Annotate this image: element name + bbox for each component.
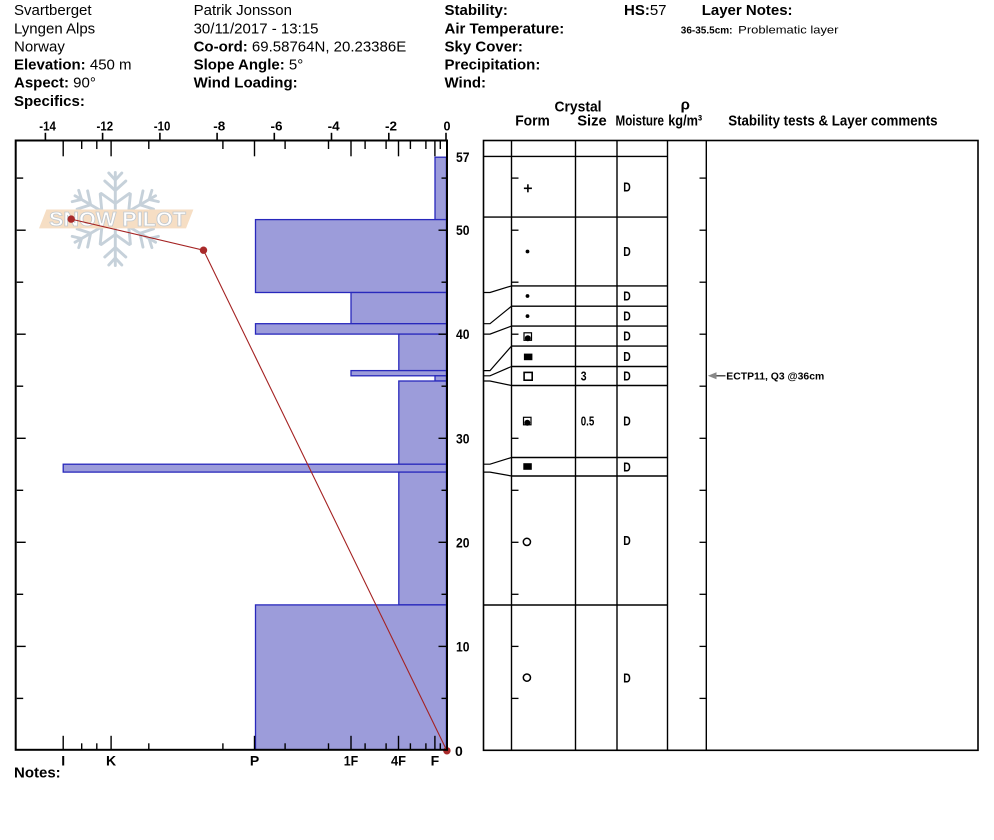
svg-text:0: 0	[455, 743, 463, 759]
svg-text:I: I	[61, 752, 65, 768]
svg-text:0: 0	[444, 119, 451, 134]
svg-text:30: 30	[456, 430, 470, 446]
svg-text:-10: -10	[154, 119, 171, 134]
svg-text:D: D	[623, 370, 631, 384]
svg-text:D: D	[623, 290, 631, 304]
svg-text:ρ: ρ	[681, 97, 690, 114]
svg-text:kg/m³: kg/m³	[668, 113, 702, 130]
svg-text:Precipitation:: Precipitation:	[445, 57, 541, 74]
svg-text:40: 40	[456, 326, 470, 342]
svg-text:Size: Size	[577, 113, 607, 130]
svg-text:Problematic layer: Problematic layer	[738, 24, 839, 36]
svg-text:-14: -14	[39, 119, 56, 134]
svg-text:Stability:: Stability:	[445, 2, 508, 19]
svg-text:10: 10	[456, 638, 470, 654]
svg-text:F: F	[431, 752, 440, 768]
svg-text:Air Temperature:: Air Temperature:	[445, 20, 565, 37]
svg-text:D: D	[623, 310, 631, 324]
svg-text:57: 57	[456, 149, 470, 165]
svg-text:4F: 4F	[391, 752, 406, 768]
svg-text:Stability tests & Layer commen: Stability tests & Layer comments	[728, 113, 937, 130]
svg-text:1F: 1F	[344, 752, 359, 768]
svg-text:20: 20	[456, 534, 470, 550]
svg-text:D: D	[623, 460, 631, 474]
svg-text:D: D	[623, 350, 631, 364]
svg-text:Patrik Jonsson: Patrik Jonsson	[194, 2, 292, 19]
svg-text:Wind Loading:: Wind Loading:	[194, 75, 298, 92]
svg-text:Norway: Norway	[14, 38, 65, 55]
svg-text:Co-ord: 69.58764N, 20.23386E: Co-ord: 69.58764N, 20.23386E	[194, 38, 407, 55]
svg-text:Elevation: 450 m: Elevation: 450 m	[14, 57, 132, 74]
svg-text:-12: -12	[97, 119, 114, 134]
svg-text:HS:57: HS:57	[624, 2, 667, 19]
svg-text:30/11/2017 - 13:15: 30/11/2017 - 13:15	[194, 20, 319, 37]
svg-text:D: D	[623, 330, 631, 344]
svg-text:D: D	[623, 245, 631, 259]
svg-text:Specifics:: Specifics:	[14, 93, 85, 110]
svg-text:0.5: 0.5	[581, 415, 595, 429]
svg-text:ECTP11, Q3 @36cm: ECTP11, Q3 @36cm	[726, 372, 824, 383]
svg-text:-4: -4	[328, 119, 341, 134]
svg-text:K: K	[106, 752, 116, 768]
svg-text:D: D	[623, 534, 631, 548]
svg-text:50: 50	[456, 222, 470, 238]
svg-text:3: 3	[581, 370, 587, 384]
svg-text:36-35.5cm:: 36-35.5cm:	[681, 25, 733, 36]
svg-text:Form: Form	[515, 113, 550, 130]
svg-text:Layer Notes:: Layer Notes:	[702, 2, 793, 19]
svg-text:Sky Cover:: Sky Cover:	[445, 38, 523, 55]
svg-text:Aspect: 90°: Aspect: 90°	[14, 75, 96, 92]
svg-text:-8: -8	[213, 119, 225, 134]
svg-text:-2: -2	[385, 119, 397, 134]
svg-text:-6: -6	[271, 119, 283, 134]
svg-text:P: P	[250, 752, 259, 768]
svg-text:Svartberget: Svartberget	[14, 2, 92, 19]
svg-text:Notes:: Notes:	[14, 764, 61, 781]
svg-text:D: D	[623, 671, 631, 685]
svg-text:D: D	[623, 415, 631, 429]
svg-text:Lyngen Alps: Lyngen Alps	[14, 20, 95, 37]
svg-text:D: D	[623, 180, 631, 194]
svg-text:Moisture: Moisture	[616, 113, 665, 130]
svg-text:Wind:: Wind:	[445, 75, 487, 92]
svg-text:Slope Angle: 5°: Slope Angle: 5°	[194, 57, 304, 74]
